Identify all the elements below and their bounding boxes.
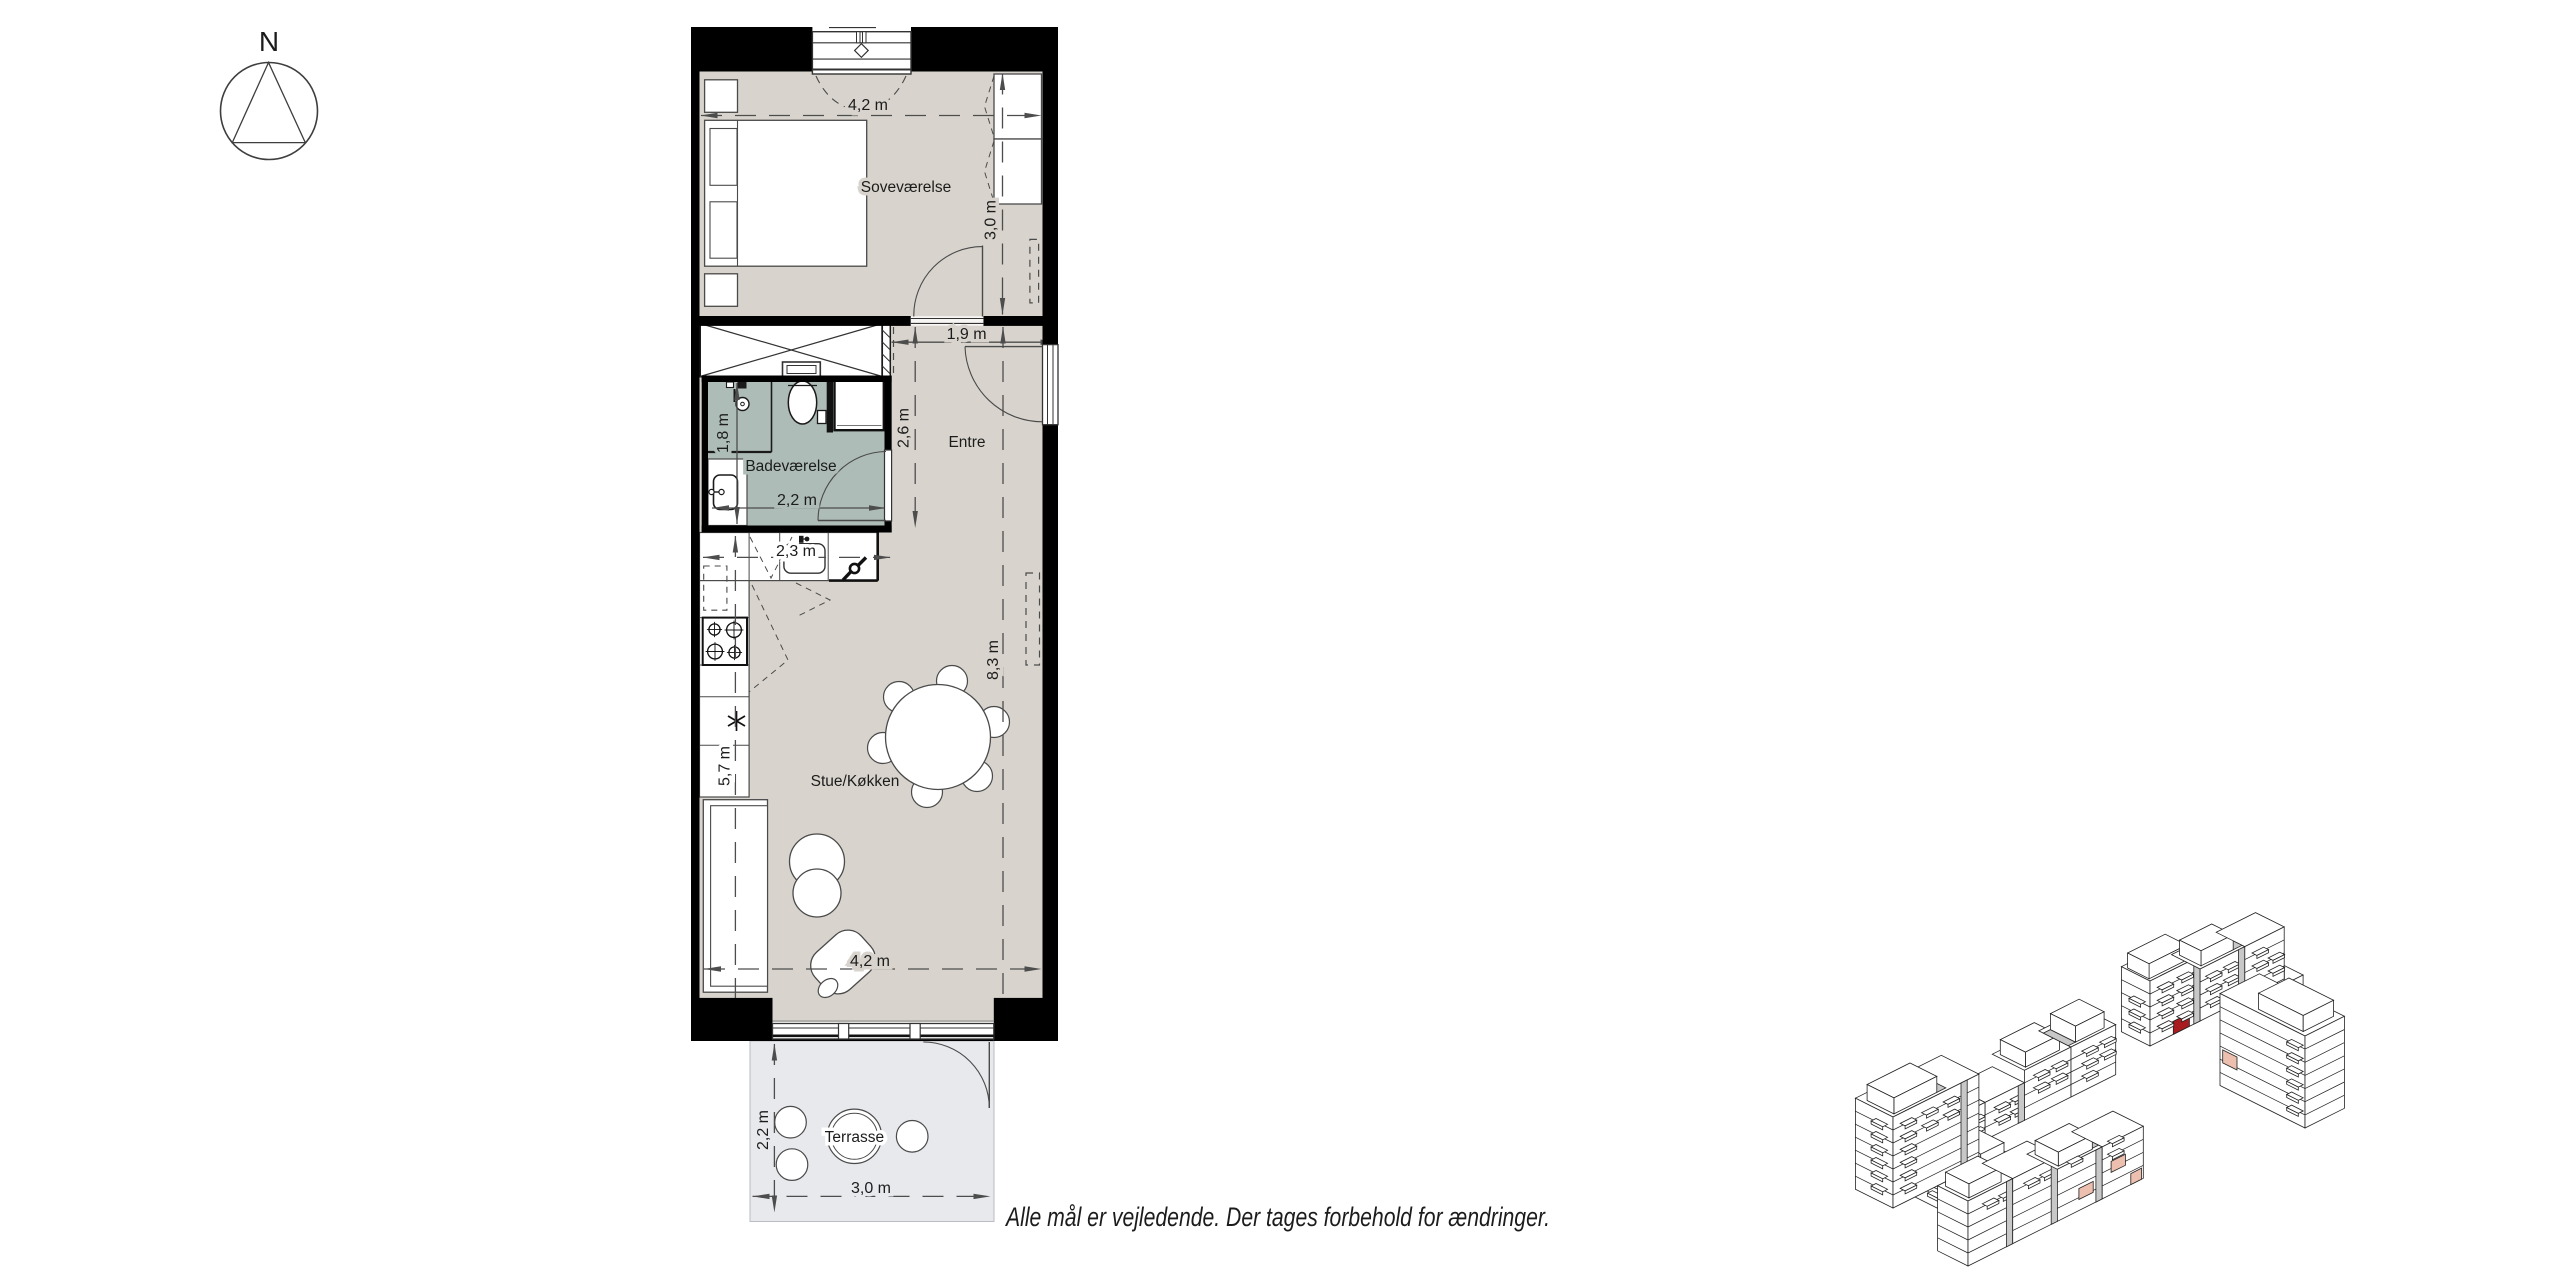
svg-text:3,0 m: 3,0 m [983,200,1000,240]
svg-text:4,2 m: 4,2 m [848,97,888,114]
svg-text:Badeværelse: Badeværelse [745,458,836,475]
svg-text:1,9 m: 1,9 m [947,326,987,343]
svg-text:Soveværelse: Soveværelse [861,179,951,196]
svg-text:Alle mål er vejledende. Der ta: Alle mål er vejledende. Der tages forbeh… [1004,1202,1550,1232]
svg-text:Entre: Entre [948,434,985,451]
svg-text:2,6 m: 2,6 m [895,408,912,448]
svg-text:2,2 m: 2,2 m [777,492,817,509]
svg-text:1,8 m: 1,8 m [715,413,732,453]
svg-text:Terrasse: Terrasse [825,1129,884,1146]
svg-text:Stue/Køkken: Stue/Køkken [811,773,900,790]
svg-text:5,7 m: 5,7 m [717,746,734,786]
svg-text:N: N [259,26,279,57]
svg-text:3,0 m: 3,0 m [851,1180,891,1197]
svg-text:2,2 m: 2,2 m [755,1110,772,1150]
svg-text:4,2 m: 4,2 m [850,953,890,970]
svg-text:8,3 m: 8,3 m [985,640,1002,680]
svg-text:2,3 m: 2,3 m [776,543,816,560]
